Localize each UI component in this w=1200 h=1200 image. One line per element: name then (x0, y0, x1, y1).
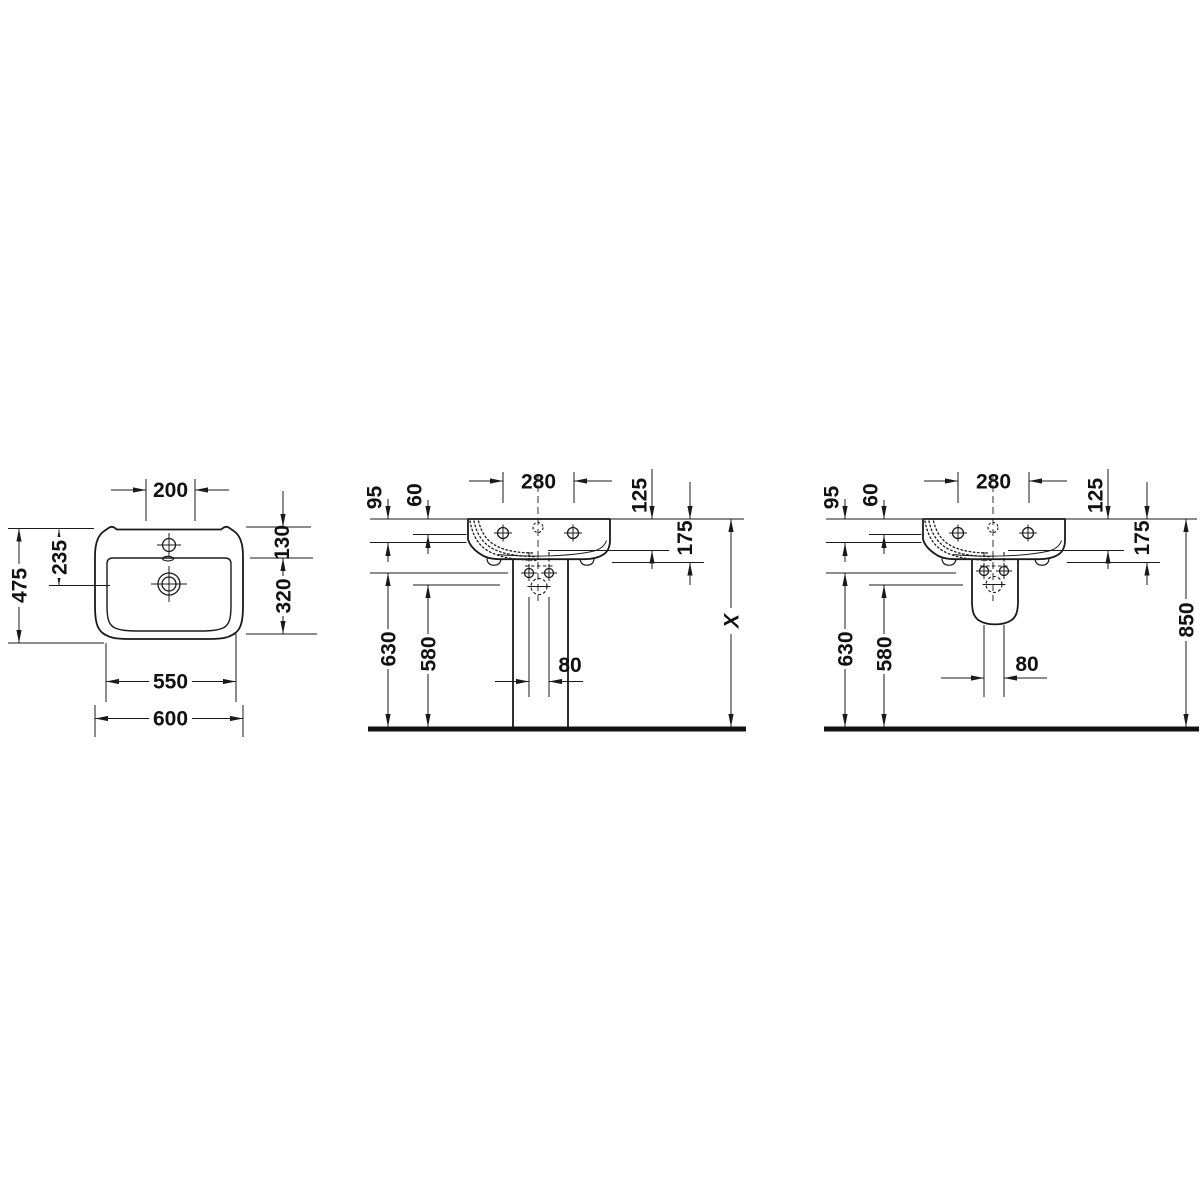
dim-label-200: 200 (153, 479, 188, 502)
tap-hole-plan-crosshair (157, 533, 181, 557)
dim-label-580: 580 (418, 636, 441, 671)
dim-label-600: 600 (153, 708, 188, 731)
dim-tap-hole-spacing: 280 (469, 471, 612, 504)
dim-bowl-depth: 320 (246, 558, 317, 634)
dim-label-550: 550 (153, 671, 188, 694)
fixing-hole-left-crosshair (976, 563, 992, 579)
dim-tap-zone-width: 200 (111, 479, 229, 521)
fixing-hole-left-crosshair (521, 565, 537, 581)
dim-tap-hole-spacing: 280 (924, 471, 1067, 504)
dim-label-280: 280 (976, 471, 1011, 494)
dim-back-drops: 95 60 (364, 483, 467, 562)
dim-outlet-width: 80 (941, 653, 1047, 678)
dim-rim-to-underside: 125 175 (548, 469, 704, 585)
drain-pipe-lines (984, 625, 1004, 697)
dim-label-235: 235 (49, 540, 72, 575)
dim-overall-width: 600 (95, 705, 243, 737)
dim-label-175: 175 (1131, 520, 1154, 555)
dim-label-125: 125 (1085, 478, 1108, 513)
technical-drawing-sheet: 200 475 235 130 320 (0, 0, 1200, 1200)
dim-label-630: 630 (378, 631, 401, 666)
front-view-half-pedestal: 280 95 60 125 175 630 (821, 469, 1200, 729)
dim-label-580: 580 (874, 636, 897, 671)
pedestal-outline (513, 560, 568, 728)
dim-floor-heights: 630 580 (370, 573, 508, 727)
dim-label-60: 60 (404, 483, 427, 506)
fixing-hole-right-crosshair (541, 565, 557, 581)
dim-label-80: 80 (558, 654, 581, 677)
fixing-hole-right-crosshair (996, 563, 1012, 579)
dim-back-to-drain: 235 (49, 530, 111, 586)
dim-outlet-width: 80 (495, 654, 583, 682)
dim-front-width: 550 (106, 634, 236, 702)
drain-pipe-lines (529, 597, 549, 697)
dim-label-95: 95 (821, 486, 844, 510)
dim-label-60: 60 (860, 483, 883, 506)
dim-label-80: 80 (1015, 653, 1038, 676)
washbasin-dimension-drawing: 200 475 235 130 320 (0, 0, 1200, 1200)
dim-label-850: 850 (1176, 602, 1199, 637)
dim-label-475: 475 (9, 568, 32, 603)
drain-crosshair (151, 566, 187, 602)
dim-back-drops: 95 60 (821, 483, 922, 562)
dim-label-125: 125 (629, 478, 652, 513)
dim-label-130: 130 (271, 525, 294, 560)
dim-label-630: 630 (835, 631, 858, 666)
dim-label-175: 175 (674, 520, 697, 555)
plan-view: 200 475 235 130 320 (8, 479, 317, 737)
dim-label-95: 95 (364, 486, 387, 510)
front-view-pedestal: 280 95 60 125 175 630 (364, 469, 747, 729)
dim-back-to-bowl: 130 (246, 491, 313, 560)
dim-rim-height: 850 (1176, 519, 1199, 727)
dim-label-x: X (721, 612, 744, 629)
dim-label-320: 320 (273, 578, 296, 613)
dim-label-280: 280 (521, 471, 556, 494)
dim-rim-height-variable: X (721, 519, 744, 727)
dim-floor-heights: 630 580 (826, 573, 963, 727)
dim-rim-to-underside: 125 175 (1008, 469, 1160, 585)
